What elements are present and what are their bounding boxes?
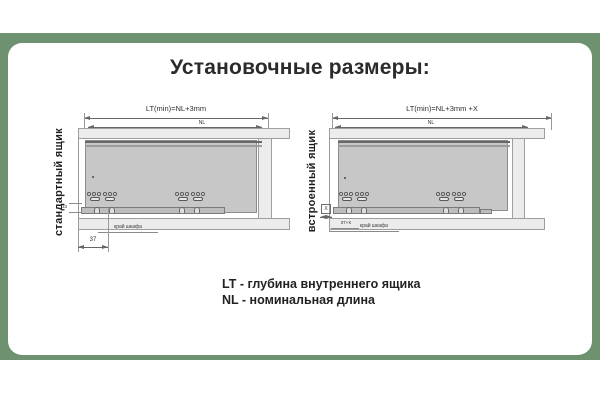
rail-hook: [443, 207, 449, 213]
rail-hook: [179, 207, 185, 213]
page-title: Установочные размеры:: [0, 56, 600, 80]
slide-rail-step: [480, 209, 492, 214]
mounting-bracket: [88, 192, 116, 201]
legend-line-nl: NL - номинальная длина: [222, 292, 420, 308]
drawer-side-panel: [85, 140, 257, 213]
mounting-bracket: [176, 192, 204, 201]
extension-line: [329, 225, 330, 232]
dimension-front-offset-line: [331, 228, 359, 229]
dimension-tick: [69, 203, 82, 204]
rail-hook: [458, 207, 464, 213]
mounting-bracket: [437, 192, 465, 201]
slide-rail: [81, 207, 225, 214]
dimension-lt-line: [332, 118, 552, 119]
dimension-lt-label: LT(min)=NL+3mm: [84, 104, 268, 113]
extension-line: [551, 113, 552, 130]
dimension-tick: [69, 212, 82, 213]
legend: LT - глубина внутреннего ящика NL - номи…: [222, 276, 420, 308]
cabinet-edge-underline: [98, 232, 158, 233]
drawer-top-rail: [85, 141, 262, 143]
drawer-top-rail: [338, 141, 510, 143]
mounting-bracket: [340, 192, 368, 201]
cabinet-edge-label: край шкафа: [360, 223, 388, 229]
dimension-front-offset-label: 37: [78, 237, 108, 243]
cabinet-right-post: [258, 138, 272, 230]
dimension-inset-x-box: X: [321, 204, 331, 214]
dimension-inset-x-line: [320, 217, 332, 218]
extension-line: [108, 208, 109, 252]
dimension-nl-label: NL: [192, 120, 212, 126]
drawer-hole-dot: [344, 177, 346, 179]
dimension-front-offset-line: [78, 247, 108, 248]
cabinet-edge-label: край шкафа: [114, 224, 142, 230]
rail-hook: [361, 207, 367, 213]
rail-hook: [346, 207, 352, 213]
cabinet-bottom-panel: [78, 218, 290, 230]
rail-hook: [194, 207, 200, 213]
drawer-top-rail-2: [85, 145, 262, 147]
cabinet-left-edge-line: [78, 139, 79, 218]
dimension-nl-label: NL: [421, 120, 441, 126]
side-label-built-in-drawer: встроенный ящик: [305, 129, 319, 233]
drawer-top-rail-2: [338, 145, 510, 147]
rail-hook: [109, 207, 115, 213]
legend-line-lt: LT - глубина внутреннего ящика: [222, 276, 420, 292]
dimension-lt-label: LT(min)=NL+3mm +X: [332, 104, 552, 113]
cabinet-right-post: [512, 138, 525, 230]
side-label-standard-drawer: стандартный ящик: [52, 127, 66, 237]
diagram-built-in-drawer: встроенный ящик LT(min)=NL+3mm +X NL X 3…: [316, 100, 568, 258]
diagram-standard-drawer: стандартный ящик LT(min)=NL+3mm NL 33 кр…: [48, 100, 300, 258]
dimension-front-offset-label: 37+X: [333, 220, 359, 225]
cabinet-edge-underline: [329, 231, 399, 232]
dimension-lt-line: [84, 118, 268, 119]
rail-hook: [94, 207, 100, 213]
drawer-hole-dot: [92, 176, 94, 178]
dimension-height-small: 33: [62, 204, 67, 209]
